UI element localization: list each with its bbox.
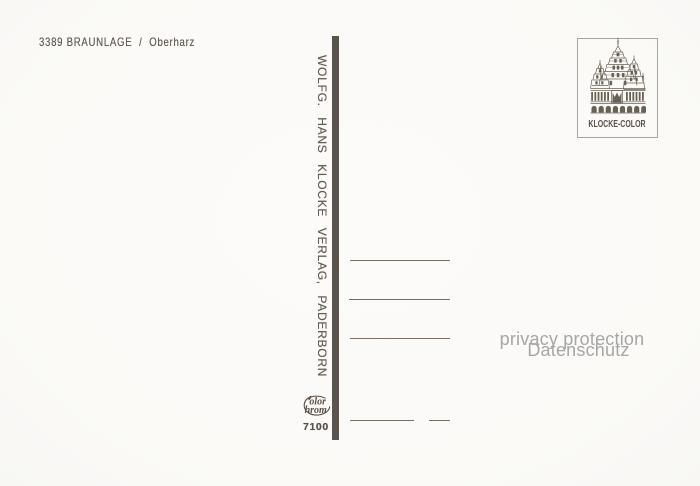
svg-text:hrom: hrom — [305, 405, 327, 416]
